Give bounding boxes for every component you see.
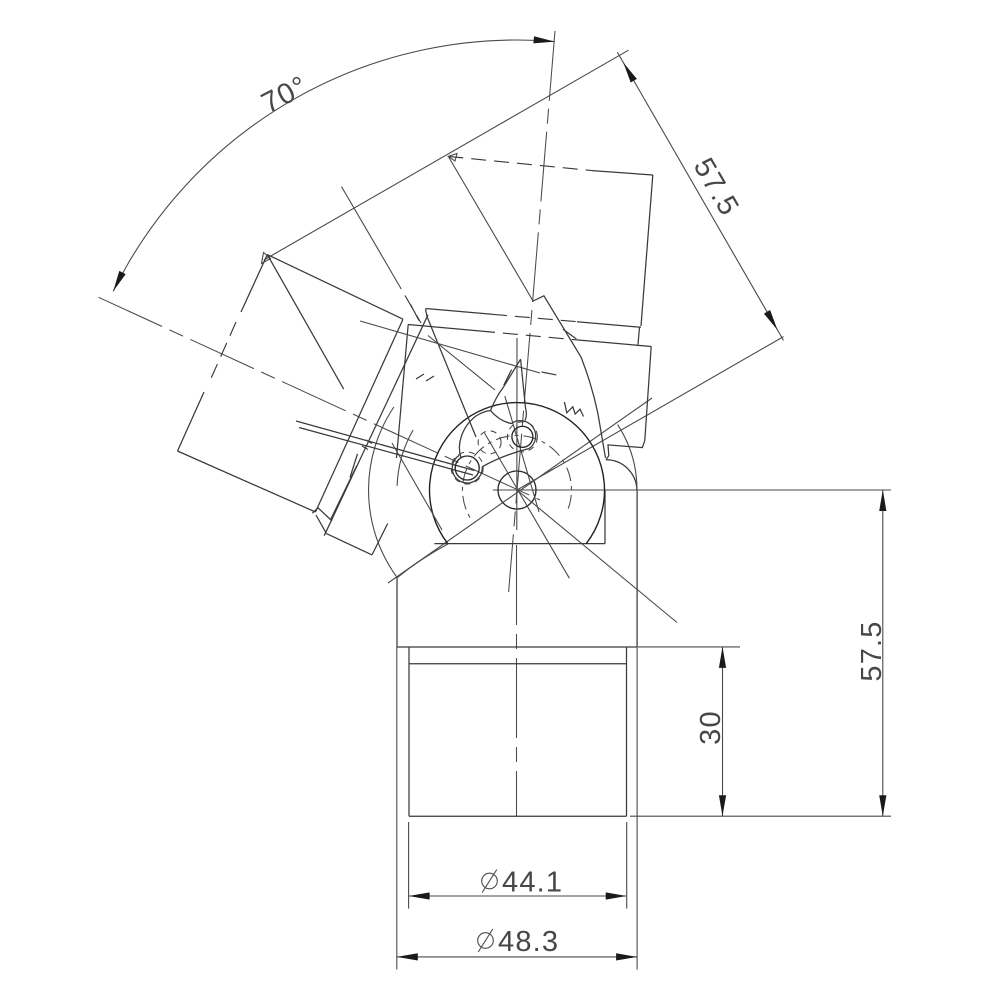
svg-text:48.3: 48.3 xyxy=(498,926,559,958)
svg-text:57.5: 57.5 xyxy=(856,620,888,681)
svg-text:30: 30 xyxy=(695,710,727,745)
svg-text:44.1: 44.1 xyxy=(502,867,563,899)
svg-text:70°: 70° xyxy=(257,70,314,120)
